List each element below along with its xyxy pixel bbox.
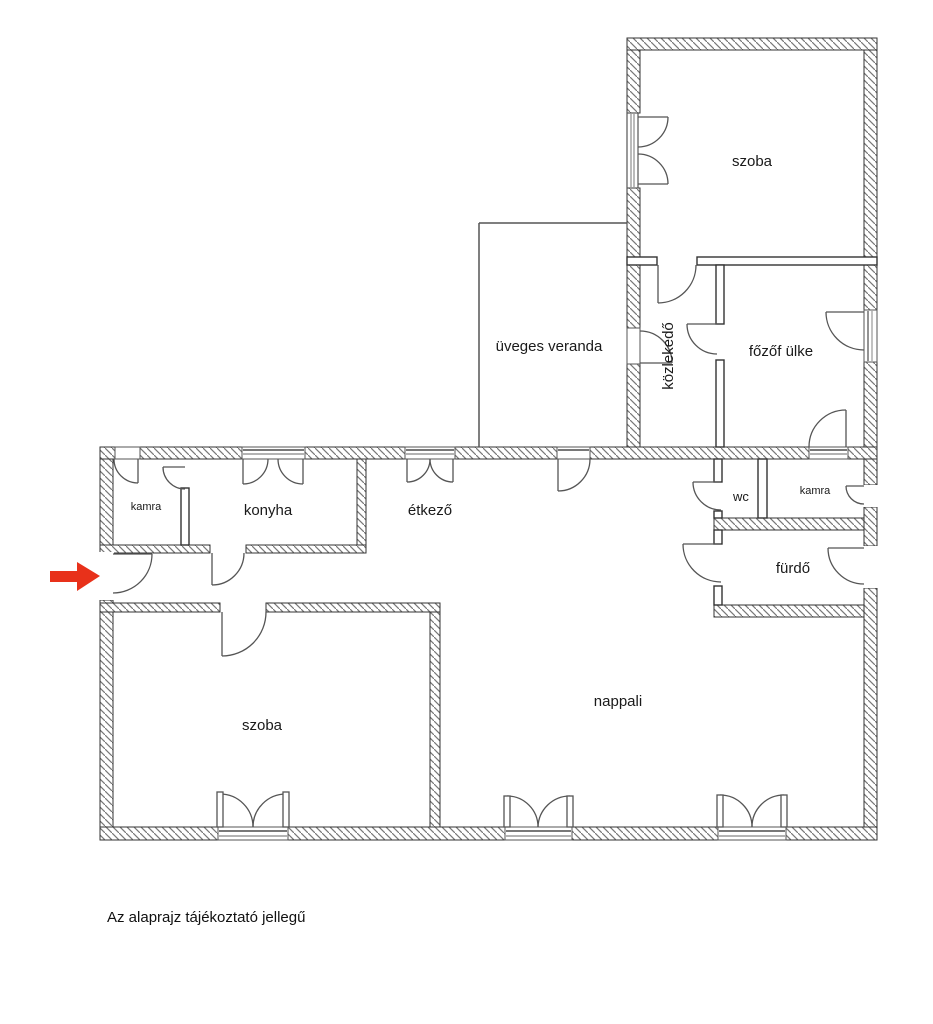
door-arc-icon [687, 324, 717, 354]
wall-segment [716, 265, 724, 324]
wall-segment [627, 364, 640, 447]
wall-segment [697, 257, 877, 265]
door-sill-icon [557, 447, 590, 459]
wall-segment [246, 545, 366, 553]
door-gap [99, 552, 114, 600]
door-arc-icon [558, 459, 590, 491]
disclaimer-text: Az alaprajz tájékoztató jellegű [107, 909, 305, 926]
wall-segment [100, 447, 115, 459]
wall-segment [100, 827, 218, 840]
wall-segment [430, 612, 440, 827]
door-arc-icon [809, 410, 846, 447]
room-label-kamra-left: kamra [131, 501, 162, 513]
door-leaf [781, 795, 787, 827]
door-arc-icon [212, 553, 244, 585]
window-szoba-bottom-icon [218, 827, 288, 840]
window-kamra-icon [115, 447, 140, 459]
wall-segment [181, 488, 189, 545]
room-label-wc: wc [732, 489, 749, 504]
floorplan-canvas: szoba közlekedő főzőf ülke üveges verand… [0, 0, 933, 1024]
room-label-uveges-veranda: üveges veranda [496, 338, 603, 355]
door-arc-icon [222, 612, 266, 656]
room-label-furdo: fürdő [776, 560, 810, 577]
window-fozofulke-icon [864, 310, 877, 362]
wall-segment [864, 362, 877, 485]
wall-segment [266, 603, 440, 612]
door-leaf [217, 792, 223, 827]
door-gap [863, 546, 878, 588]
window-szoba-top-icon [627, 113, 638, 188]
door-arc-icon [243, 459, 268, 484]
wall-segment [714, 511, 722, 518]
floorplan-drawing: szoba közlekedő főzőf ülke üveges verand… [0, 0, 933, 1024]
wall-segment [572, 827, 718, 840]
wall-segment [786, 827, 877, 840]
door-arc-icon [163, 467, 185, 489]
door-arc-icon [638, 117, 668, 147]
door-arc-icon [114, 459, 138, 483]
door-arc-icon [693, 482, 721, 510]
door-arc-icon [638, 154, 668, 184]
room-label-szoba-bottom: szoba [242, 717, 283, 734]
right-arrow-icon [50, 562, 100, 591]
window-etkezo-icon [405, 447, 455, 459]
door-frame-icon [627, 328, 640, 364]
room-label-konyha: konyha [244, 502, 293, 519]
door-arc-icon [278, 459, 303, 484]
door-arc-icon [407, 459, 430, 482]
door-arc-icon [720, 795, 752, 827]
door-arc-icon [538, 796, 570, 827]
door-arc-icon [828, 548, 864, 584]
door-leaf [717, 795, 723, 827]
room-labels: szoba közlekedő főzőf ülke üveges verand… [131, 153, 831, 734]
wall-segment [357, 459, 366, 545]
wall-segment [627, 38, 877, 50]
door-leaf [567, 796, 573, 827]
window-nappali-left-icon [505, 827, 572, 840]
wall-segment [455, 447, 557, 459]
wall-segment [864, 507, 877, 546]
room-label-fozofulke: főzőf ülke [749, 343, 813, 360]
wall-segment [590, 447, 809, 459]
window-konyha-icon [242, 447, 305, 459]
wall-segment [140, 447, 242, 459]
door-arc-icon [752, 795, 784, 827]
wall-segment [100, 603, 220, 612]
room-label-szoba-top: szoba [732, 153, 773, 170]
door-arc-icon [846, 486, 864, 504]
wall-segment [714, 530, 722, 544]
door-arc-icon [826, 312, 864, 350]
door-arc-icon [113, 554, 152, 593]
door-arc-icon [507, 796, 538, 827]
wall-segment [627, 50, 640, 113]
door-leaf [283, 792, 289, 827]
wall-segment [864, 588, 877, 827]
door-arc-icon [253, 794, 286, 827]
wall-segment [848, 447, 877, 459]
wall-segment [758, 459, 767, 518]
room-label-kozlekedo: közlekedő [660, 322, 677, 390]
door-arc-icon [220, 794, 253, 827]
room-label-nappali: nappali [594, 693, 642, 710]
room-label-kamra-right: kamra [800, 485, 831, 497]
wall-segment [100, 600, 113, 827]
wall-segment [305, 447, 405, 459]
window-nappali-right-icon [718, 827, 786, 840]
wall-segment [864, 50, 877, 310]
room-label-etkezo: étkező [408, 502, 452, 519]
wall-segment [288, 827, 505, 840]
wall-segment [100, 459, 113, 552]
wall-segment [714, 605, 864, 617]
wall-segment [714, 586, 722, 605]
wall-segment [714, 518, 864, 530]
door-arc-icon [683, 544, 721, 582]
wall-segment [716, 360, 724, 447]
interior-hatched-walls [100, 459, 864, 827]
wall-segment [714, 459, 722, 482]
door-gap [863, 485, 878, 507]
door-arc-icon [658, 265, 696, 303]
door-arc-icon [430, 459, 453, 482]
door-sill-icon [809, 447, 848, 459]
wall-segment [100, 545, 210, 553]
door-leaf [504, 796, 510, 827]
veranda-outline [479, 223, 627, 447]
wall-segment [627, 257, 657, 265]
